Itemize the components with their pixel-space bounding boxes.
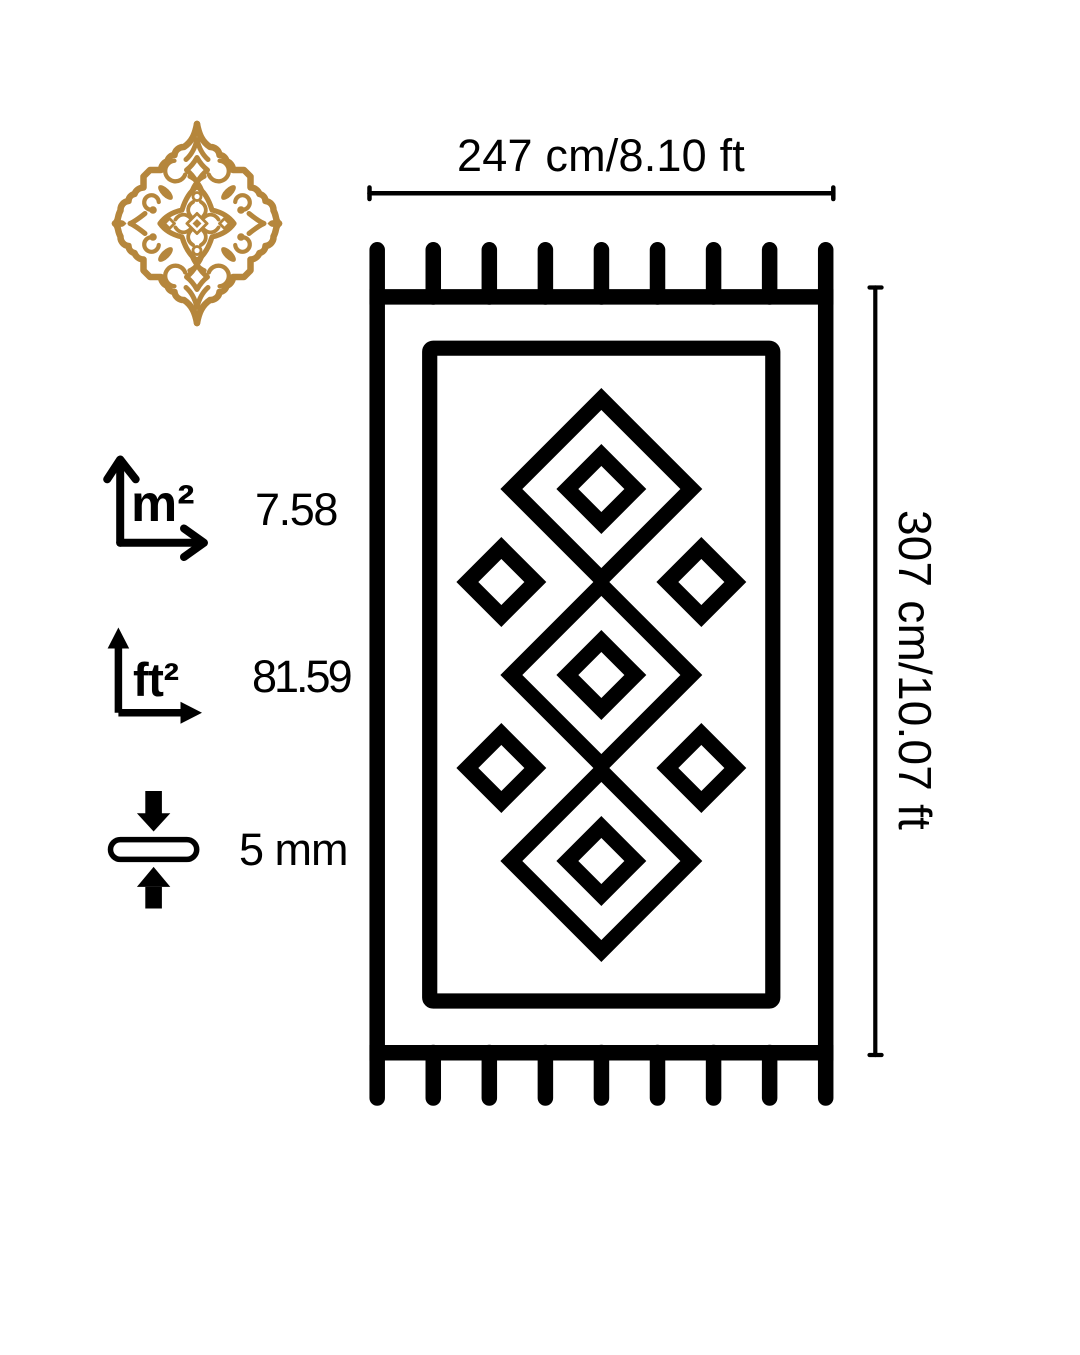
svg-text:307 cm/10.07 ft: 307 cm/10.07 ft xyxy=(889,510,941,830)
svg-text:ft²: ft² xyxy=(133,653,179,706)
svg-text:81.59: 81.59 xyxy=(252,651,351,702)
svg-text:7.58: 7.58 xyxy=(255,484,337,535)
svg-text:247 cm/8.10 ft: 247 cm/8.10 ft xyxy=(457,130,745,181)
svg-text:m²: m² xyxy=(131,475,195,533)
svg-text:5 mm: 5 mm xyxy=(239,824,348,875)
